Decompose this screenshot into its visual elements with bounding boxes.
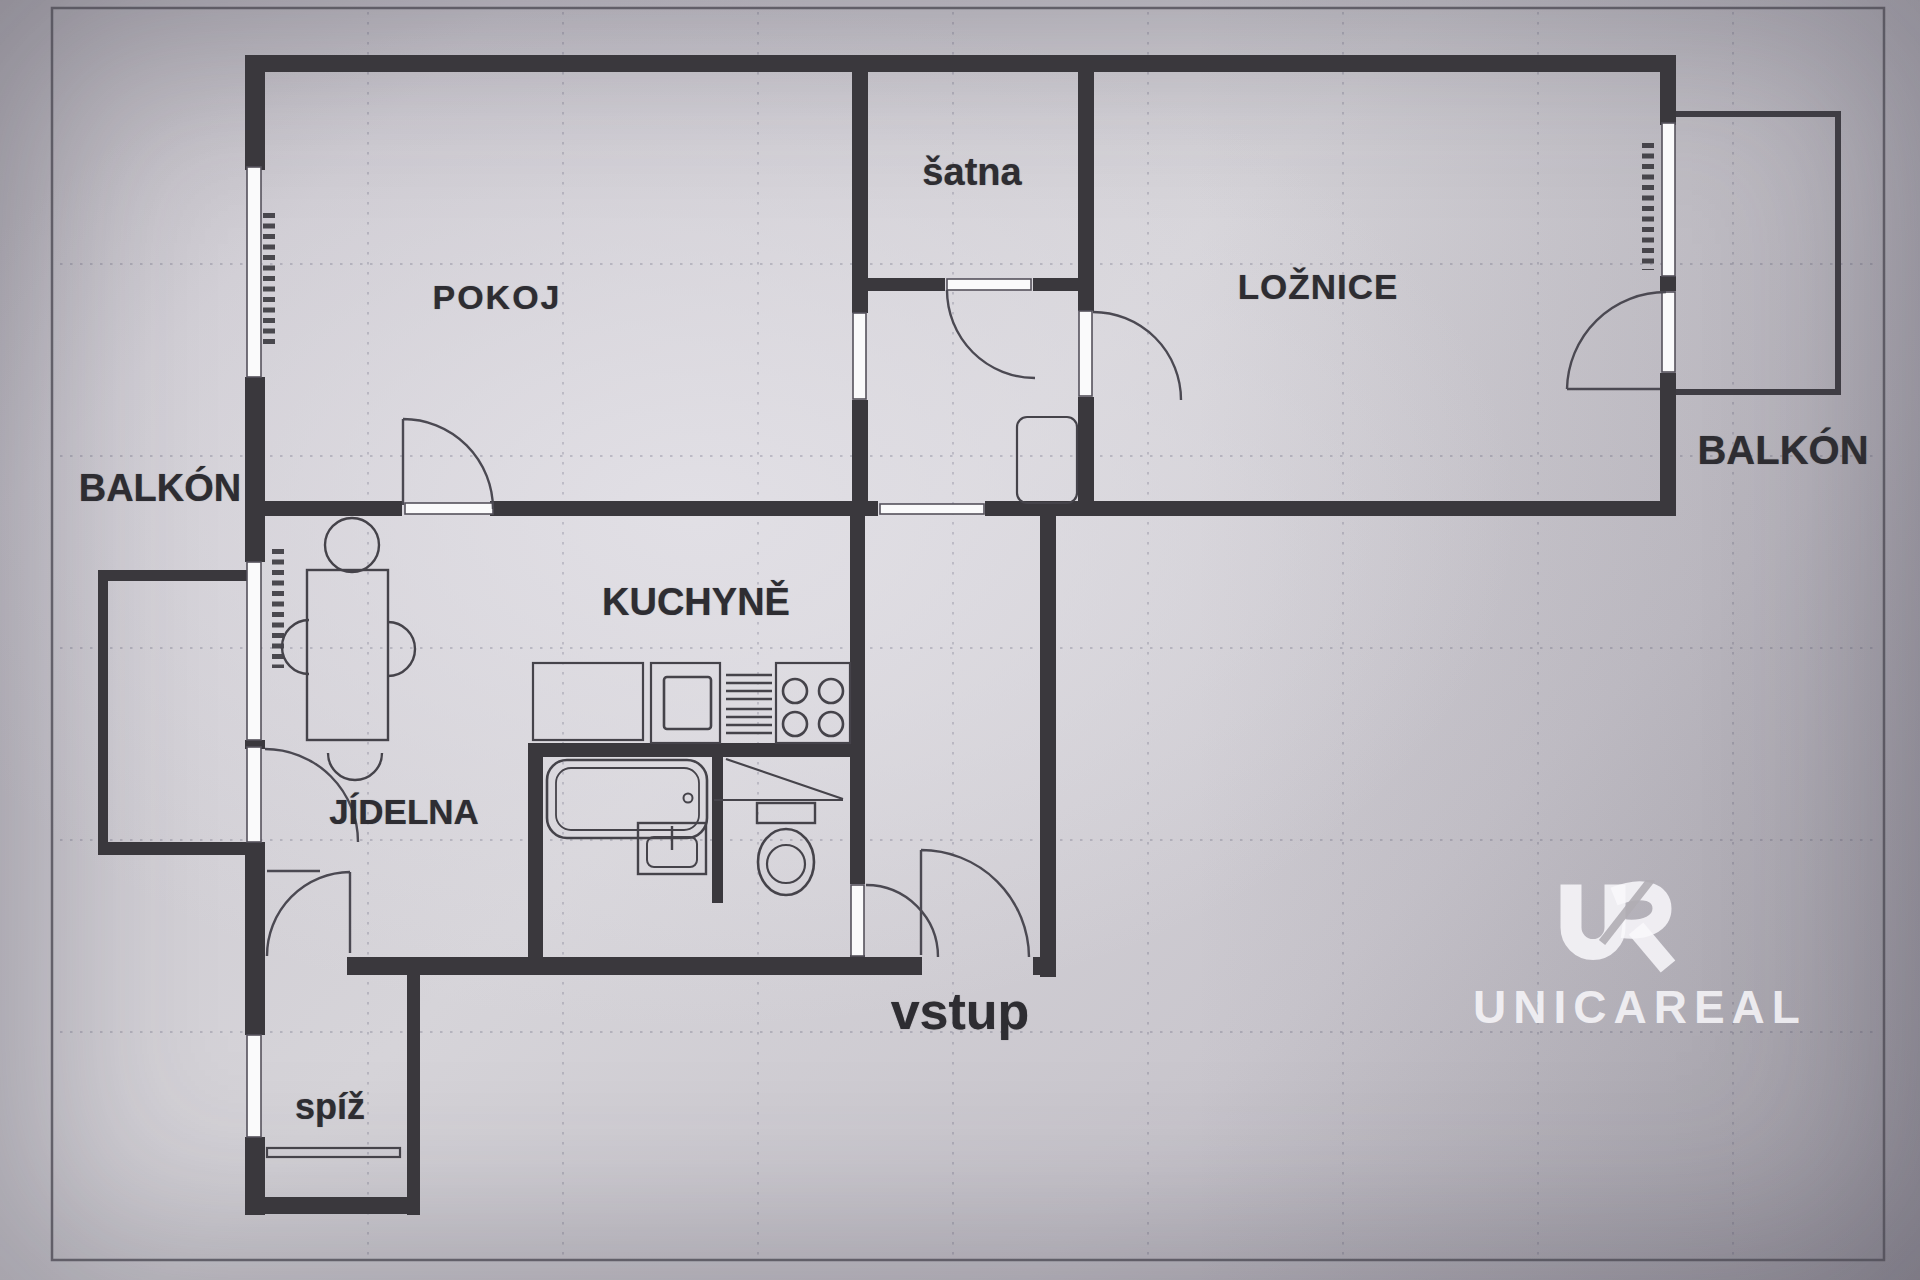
grid-lines	[60, 12, 1880, 1256]
room-label-satna: šatna	[922, 151, 1021, 194]
room-label-balkon-left: BALKÓN	[79, 467, 242, 510]
furniture	[267, 417, 1077, 1157]
kitchen-stove	[776, 663, 850, 743]
room-label-vstup: vstup	[891, 981, 1030, 1041]
door-arc-loznice	[1093, 312, 1181, 400]
scanned-floor-plan: POKOJ šatna LOŽNICE BALKÓN BALKÓN KUCHYN…	[0, 0, 1920, 1280]
watermark-text: UNICAREAL	[1473, 980, 1773, 1034]
room-label-kuchyne: KUCHYNĚ	[602, 581, 790, 624]
room-label-spiz: spíž	[295, 1086, 365, 1128]
hall-cabinet	[1017, 417, 1077, 503]
scan-border-frame	[52, 8, 1884, 1260]
door-leaf-pokoj-kitchen	[405, 503, 493, 514]
door-arc-wc	[866, 885, 938, 957]
door-arc-pokoj-kitchen	[403, 419, 493, 509]
bathtub	[547, 760, 707, 838]
door-leaf-loznice	[1079, 311, 1092, 396]
room-label-jidelna: JÍDELNA	[329, 792, 479, 832]
door-leaf-pokoj-hall	[853, 313, 866, 399]
watermark: UNICAREAL	[1473, 880, 1773, 1034]
room-label-pokoj: POKOJ	[432, 278, 561, 317]
window-spiz	[247, 1035, 261, 1137]
room-label-loznice: LOŽNICE	[1238, 267, 1399, 307]
toilet	[757, 803, 815, 895]
walls	[98, 55, 1676, 1215]
door-swings	[265, 290, 1666, 957]
door-leaf-loznice-balcony	[1662, 292, 1675, 372]
pantry-shelf	[267, 1148, 400, 1157]
window-pokoj	[247, 167, 261, 377]
room-label-balkon-right: BALKÓN	[1697, 428, 1868, 473]
door-arc-satna	[947, 290, 1035, 378]
door-leaf-satna	[947, 279, 1031, 290]
door-arc-loznice-balcony	[1567, 292, 1666, 389]
balcony-right-outline	[1676, 114, 1838, 392]
door-leaves	[247, 279, 1675, 956]
door-leaf-jidelna-balcony	[247, 747, 261, 842]
kitchen-drainer	[726, 675, 772, 733]
kitchen-counter	[533, 663, 643, 740]
door-arc-jidelna-spiz	[267, 871, 350, 956]
radiators	[269, 143, 1648, 668]
passage-hall-vstup	[880, 504, 984, 514]
ur-logo-icon	[1548, 880, 1698, 980]
window-loznice	[1662, 123, 1675, 276]
door-leaf-wc	[851, 885, 864, 956]
dining-table	[307, 570, 388, 740]
window-jidelna	[247, 562, 261, 740]
kitchen-sink-unit	[651, 663, 720, 743]
vent-shaft	[714, 759, 843, 800]
